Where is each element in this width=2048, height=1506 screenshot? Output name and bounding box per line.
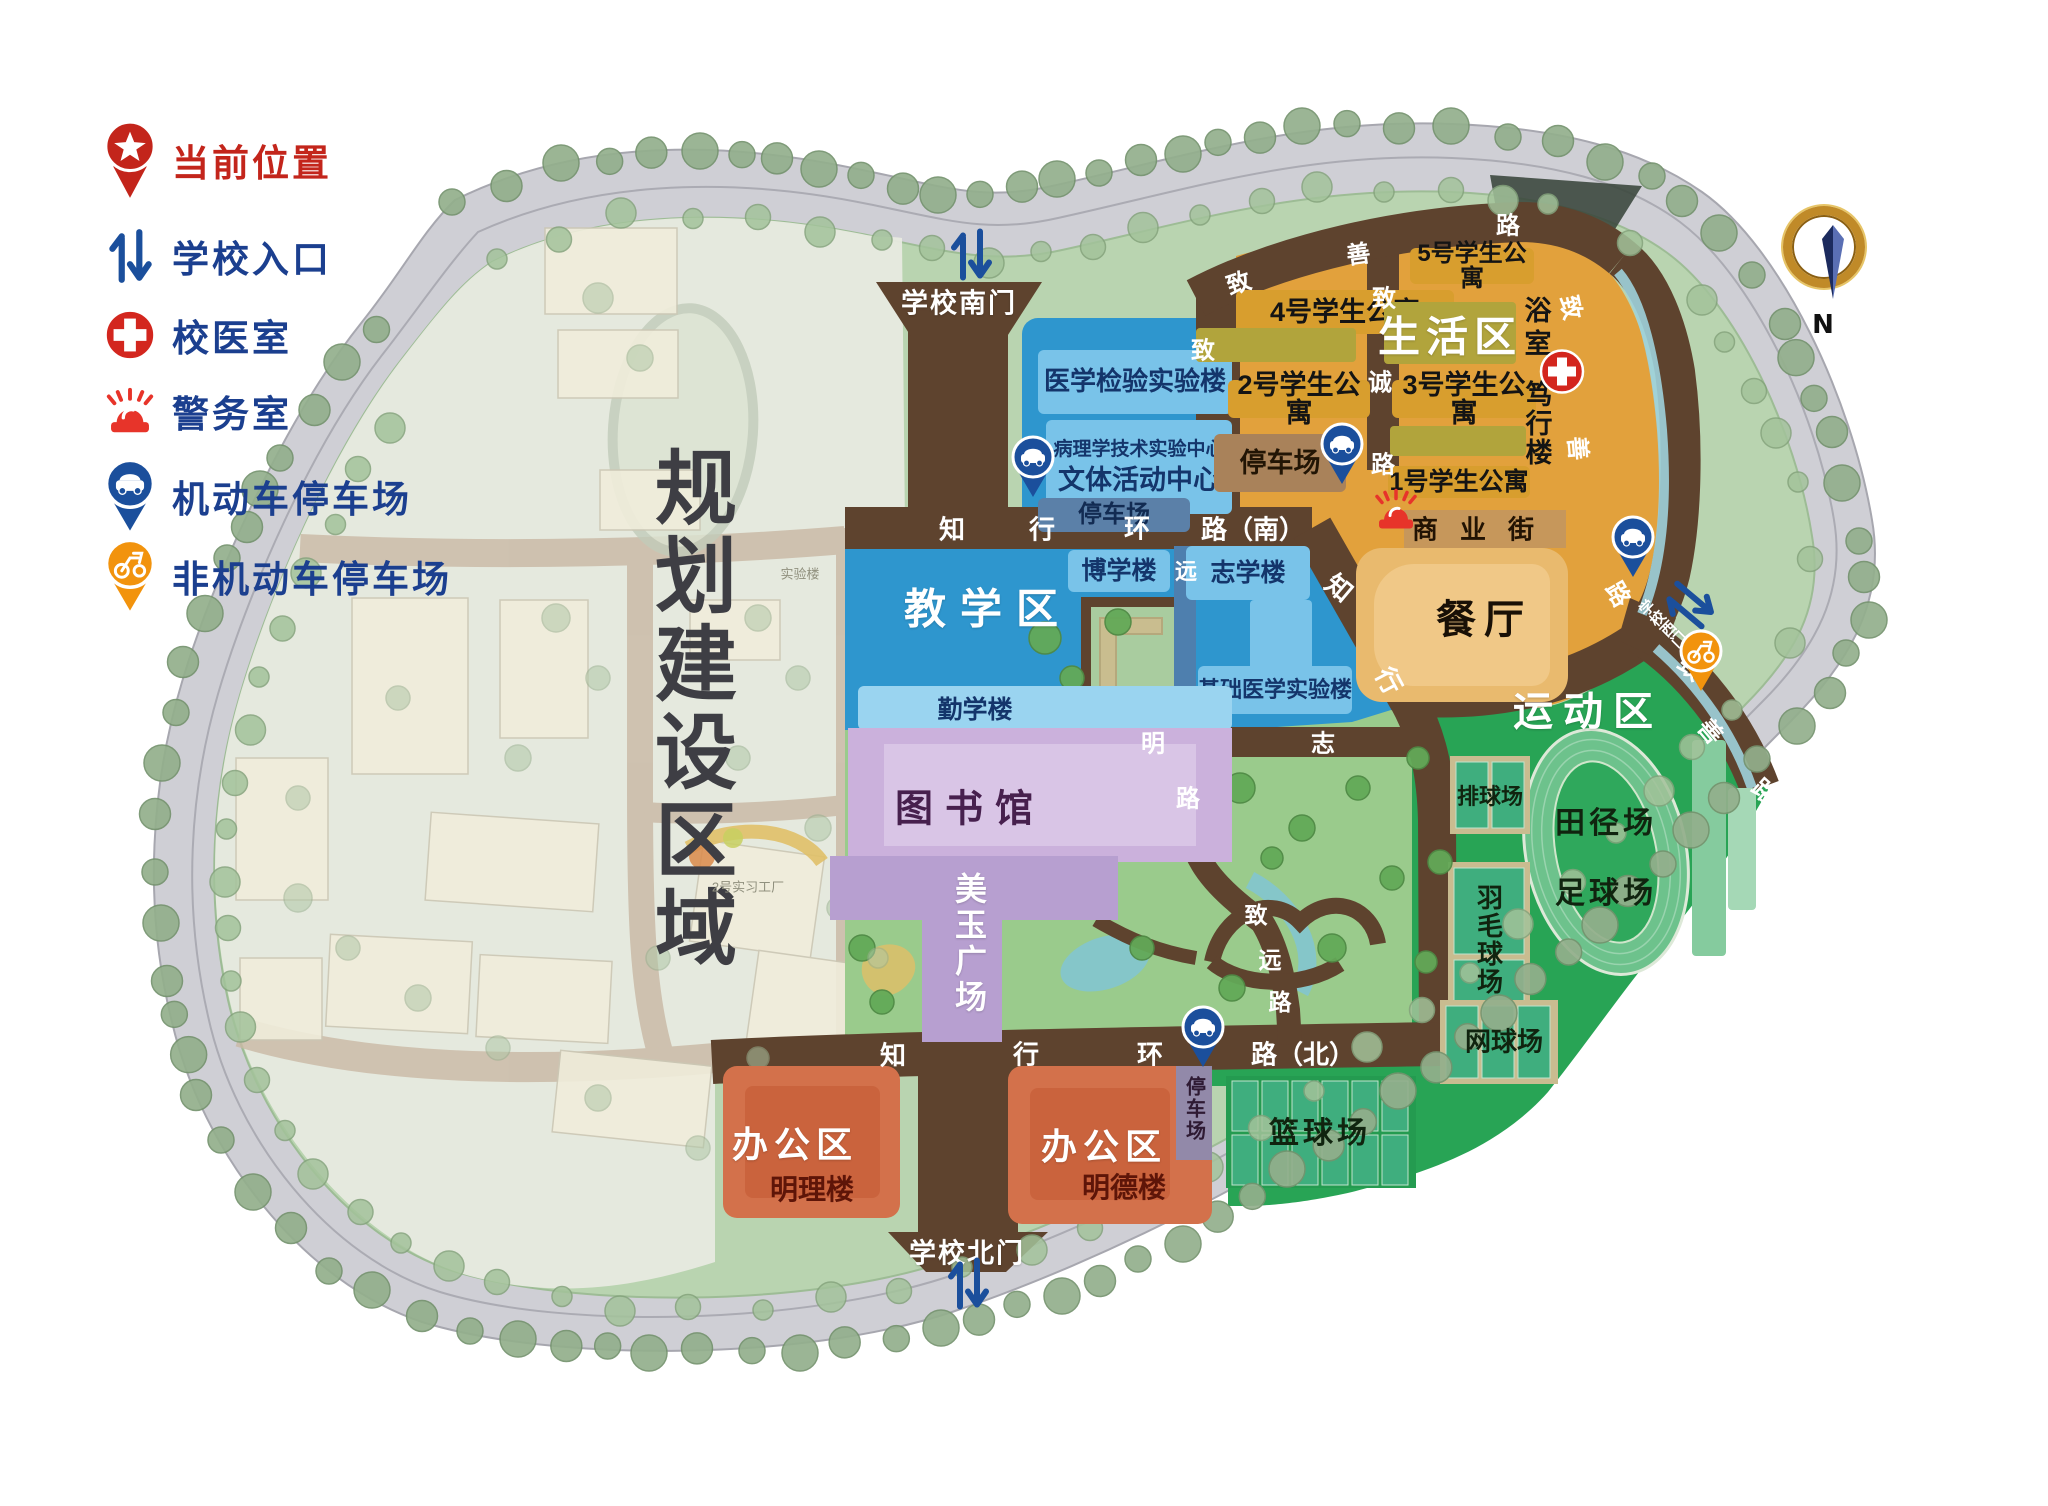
road-label: 致 xyxy=(1245,896,1268,930)
road-label: 诚 xyxy=(1368,363,1392,398)
car-parking-pin-icon xyxy=(1610,515,1656,584)
building-label: 2号学生公寓 xyxy=(1228,371,1370,428)
faded-lab-label: 实验楼 xyxy=(780,564,819,583)
gate-arrows-icon xyxy=(88,226,172,286)
legend-row-current-location: 当前位置 xyxy=(88,120,332,200)
road-label: 远 xyxy=(1175,554,1197,586)
building-label: 停车场 xyxy=(1240,449,1321,477)
road-label: 致 xyxy=(1191,331,1215,366)
legend-label: 当前位置 xyxy=(172,133,332,187)
car-parking-pin-icon xyxy=(88,458,172,533)
road-label: 环 xyxy=(1124,509,1150,546)
building-label: 文体活动中心 xyxy=(1058,466,1220,494)
legend-label: 警务室 xyxy=(172,384,292,438)
road-label: 远 xyxy=(1259,941,1282,975)
legend-row-school-entrance: 学校入口 xyxy=(88,226,332,286)
compass-ring-icon xyxy=(1783,206,1865,288)
zone-office-left-label: 办公区 xyxy=(732,1116,858,1168)
building-label: 志学楼 xyxy=(1210,560,1285,586)
car-parking-pin-icon xyxy=(1010,435,1056,504)
car-parking-pin-icon xyxy=(1319,422,1365,491)
scooter-parking-pin-icon xyxy=(88,538,172,613)
legend-label: 非机动车停车场 xyxy=(172,549,452,603)
building-dining-label: 餐厅 xyxy=(1436,587,1532,645)
building-label: 医学检验实验楼 xyxy=(1044,368,1226,395)
legend-row-police: 警务室 xyxy=(88,384,292,438)
siren-icon xyxy=(88,385,172,437)
road-label: 志 xyxy=(1311,724,1335,759)
road-label: 环 xyxy=(1137,1035,1163,1072)
road-label: 行 xyxy=(1029,510,1055,547)
basketball-label: 篮球场 xyxy=(1269,1108,1371,1152)
building-apt2: 2号学生公寓 xyxy=(1228,380,1370,418)
medical-cross-icon xyxy=(1539,349,1585,400)
legend-label: 机动车停车场 xyxy=(172,469,412,523)
building-apt3: 3号学生公寓 xyxy=(1392,380,1536,418)
building-label: 病理学技术实验中心 xyxy=(1053,440,1224,460)
building-qinxue-label: 勤学楼 xyxy=(937,690,1012,726)
road-label: 路 xyxy=(1371,445,1395,480)
building-olive-2 xyxy=(1390,426,1526,456)
faded-factory-label: 2号实习工厂 xyxy=(712,877,784,896)
legend-label: 校医室 xyxy=(172,308,292,362)
compass: N xyxy=(1783,206,1863,340)
building-apt5: 5号学生公寓 xyxy=(1410,248,1534,284)
zone-teaching-label: 教学区 xyxy=(904,576,1072,637)
road-label: 知 xyxy=(880,1036,906,1073)
siren-icon xyxy=(1370,487,1422,538)
location-pin-icon xyxy=(88,120,172,200)
gate-arrows-icon xyxy=(949,226,993,289)
legend-label: 学校入口 xyxy=(172,229,332,283)
football-label: 足球场 xyxy=(1555,868,1657,912)
road-label: 业 xyxy=(1460,510,1486,547)
zone-sports-label: 运动区 xyxy=(1513,679,1663,737)
campus-map-poster: 当前位置 学校入口 校医室 警务室 机动车停车场 非机动车停车场 xyxy=(0,0,2048,1506)
volleyball-label: 排球场 xyxy=(1457,779,1523,811)
compass-north-label: N xyxy=(1783,310,1863,340)
zone-office-right-label: 办公区 xyxy=(1041,1118,1167,1170)
gate-arrows-icon xyxy=(946,1255,990,1318)
road-label: 善 xyxy=(1344,233,1373,271)
road-label: 善 xyxy=(1562,435,1599,462)
road-label: 路 xyxy=(1176,779,1200,814)
office-parking-label: 停车场 xyxy=(1180,1076,1209,1142)
zone-plaza-label: 美玉广场 xyxy=(946,872,992,1016)
badminton-label: 羽毛球场 xyxy=(1471,884,1508,996)
road-label: 明 xyxy=(1141,724,1165,759)
building-label: 博学楼 xyxy=(1081,558,1156,584)
building-mingde-label: 明德楼 xyxy=(1082,1166,1166,1206)
road-label: 路 xyxy=(1269,983,1292,1017)
building-mingli-label: 明理楼 xyxy=(770,1168,854,1208)
road-label: 路（南） xyxy=(1201,510,1305,547)
road-label: 致 xyxy=(1372,279,1396,314)
building-olive-1 xyxy=(1196,328,1356,362)
road-label: 行 xyxy=(1013,1035,1039,1072)
building-zhixue: 志学楼 xyxy=(1186,546,1310,600)
road-label: 街 xyxy=(1508,510,1534,547)
track-label: 田径场 xyxy=(1555,798,1657,842)
legend-row-clinic: 校医室 xyxy=(88,308,292,362)
tennis-label: 网球场 xyxy=(1465,1022,1543,1059)
compass-needle-icon xyxy=(1820,223,1846,303)
car-parking-pin-icon xyxy=(1180,1005,1226,1074)
road-label: 知 xyxy=(939,510,965,547)
building-label: 3号学生公寓 xyxy=(1392,371,1536,428)
building-library-label: 图书馆 xyxy=(895,778,1045,833)
medical-cross-icon xyxy=(88,308,172,362)
legend-row-scooter-parking: 非机动车停车场 xyxy=(88,538,452,613)
building-boxue: 博学楼 xyxy=(1068,550,1170,592)
road-label: 路 xyxy=(1496,206,1520,241)
teaching-parking-strip: 停车场 xyxy=(1038,498,1190,532)
building-qinxue xyxy=(858,686,1232,730)
legend-row-car-parking: 机动车停车场 xyxy=(88,458,412,533)
building-label: 5号学生公寓 xyxy=(1410,241,1534,291)
zone-living-label: 生活区 xyxy=(1378,304,1522,365)
road-label: 路（北） xyxy=(1251,1035,1355,1072)
